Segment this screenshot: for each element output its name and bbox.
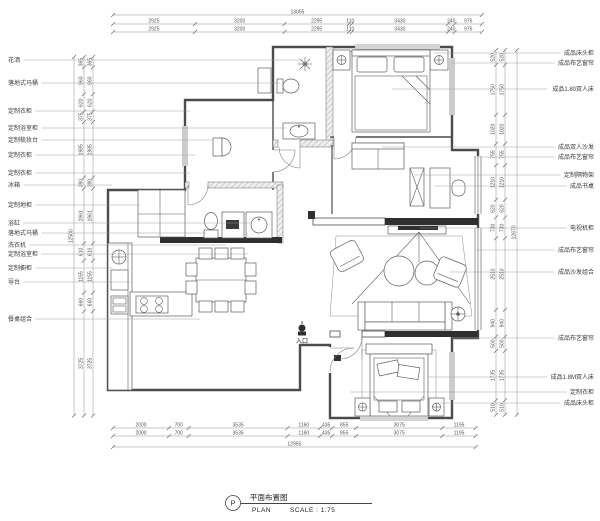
furniture-nw-room bbox=[213, 68, 271, 156]
column-hall bbox=[308, 211, 315, 219]
annotation-text: 3430 bbox=[394, 19, 405, 25]
annotation-text: 1155 bbox=[79, 271, 85, 282]
floor-plan-canvas: 入口 2925320022951103430240975292532002295… bbox=[0, 0, 600, 521]
tall-cabinet bbox=[138, 190, 185, 237]
pillow bbox=[357, 57, 387, 72]
annotation-text: 620 bbox=[88, 98, 94, 107]
wall-bath-south bbox=[300, 140, 333, 147]
annotation-text: 3075 bbox=[394, 423, 405, 429]
headboard bbox=[352, 50, 430, 56]
annotation-text: 960 bbox=[88, 76, 94, 85]
annotation-text: 1961 bbox=[79, 210, 85, 221]
annotation-text: 960 bbox=[79, 76, 85, 85]
annotation-text: 成品床头柜 bbox=[564, 399, 594, 407]
wall-bath-east bbox=[326, 47, 333, 145]
annotation-text: 1735 bbox=[491, 370, 497, 381]
furniture-living-room bbox=[329, 226, 472, 330]
annotation-text: 1210 bbox=[500, 177, 506, 188]
toilet-icon bbox=[205, 213, 218, 230]
annotation-text: 1750 bbox=[491, 84, 497, 95]
annotation-text: 2925 bbox=[148, 19, 159, 25]
kitchen-counter bbox=[108, 243, 132, 390]
drawing-title-cn: 平面布置图 bbox=[250, 492, 288, 502]
wall-bath2-east bbox=[277, 185, 283, 243]
annotation-text: 1985 bbox=[88, 144, 94, 155]
wall-bath2-north bbox=[208, 182, 283, 188]
window-nw-west bbox=[182, 126, 188, 166]
furniture-kitchen bbox=[108, 190, 192, 390]
annotation-text: 435 bbox=[322, 423, 331, 429]
door-bath2 bbox=[188, 185, 208, 205]
chair bbox=[245, 263, 256, 276]
dresser-icon bbox=[213, 138, 222, 156]
annotation-text: 1020 bbox=[491, 123, 497, 134]
window-bay-living bbox=[474, 228, 481, 330]
door-entry bbox=[330, 348, 354, 372]
annotation-text: 700 bbox=[175, 431, 184, 437]
annotation-text: 975 bbox=[464, 19, 473, 25]
annotation-text: 755 bbox=[500, 150, 506, 159]
annotation-text: 730 bbox=[491, 223, 497, 232]
annotation-text: 12670 bbox=[512, 225, 518, 239]
annotation-text: 620 bbox=[79, 98, 85, 107]
annotation-text: 2925 bbox=[148, 27, 159, 33]
toilet-tank bbox=[204, 230, 218, 238]
fixtures-bath2 bbox=[204, 212, 272, 238]
chair bbox=[231, 248, 244, 259]
fixtures-master-bath bbox=[277, 57, 315, 139]
annotation-text: 3430 bbox=[394, 27, 405, 33]
chair bbox=[186, 281, 197, 294]
desk-icon bbox=[430, 168, 450, 208]
annotation-text: 1160 bbox=[298, 431, 309, 437]
annotation-text: 855 bbox=[340, 431, 349, 437]
stool bbox=[379, 401, 397, 412]
furniture-study bbox=[352, 143, 465, 208]
furniture-master-bedroom bbox=[333, 50, 448, 132]
window-bedroom2-east bbox=[449, 352, 455, 400]
shower-head-icon bbox=[298, 57, 312, 71]
wall-bath2-north-stub bbox=[185, 182, 189, 188]
annotation-text: 成品布艺窗帘 bbox=[558, 59, 594, 67]
annotation-text: 成品1.80双人床 bbox=[552, 85, 594, 93]
annotation-text: 2510 bbox=[491, 268, 497, 279]
annotation-text: 定制衣柜 bbox=[8, 151, 32, 159]
annotation-text: 定制衣柜 bbox=[570, 388, 594, 396]
chair bbox=[231, 301, 244, 312]
annotation-text: 1195 bbox=[454, 431, 465, 437]
chair bbox=[245, 281, 256, 294]
annotation-text: 1155 bbox=[88, 271, 94, 282]
annotation-text: 110 bbox=[346, 27, 354, 33]
annotation-text: 成品书桌 bbox=[570, 182, 594, 190]
sink-unit bbox=[111, 296, 128, 314]
annotation-text: 375 bbox=[79, 112, 85, 121]
annotation-text: 940 bbox=[491, 319, 497, 328]
annotation-text: 500 bbox=[491, 339, 497, 348]
annotation-text: 390 bbox=[88, 179, 94, 188]
annotation-text: 餐桌组合 bbox=[8, 315, 32, 323]
wall-bedroom2-north-b bbox=[362, 331, 385, 337]
annotation-text: 1195 bbox=[454, 423, 465, 429]
annotation-text: 3535 bbox=[233, 423, 244, 429]
annotation-text: 1210 bbox=[491, 177, 497, 188]
annotation-text: 375 bbox=[88, 112, 94, 121]
coffee-table-icon bbox=[384, 256, 414, 286]
annotation-text: 电视机柜 bbox=[570, 224, 594, 232]
annotation-text: 520 bbox=[500, 53, 506, 62]
annotation-text: 成品床头柜 bbox=[564, 49, 594, 57]
annotation-text: 1961 bbox=[88, 210, 94, 221]
annotation-text: 240 bbox=[447, 19, 456, 25]
window-master-north bbox=[355, 44, 440, 50]
dresser-mirror bbox=[222, 138, 231, 156]
chair bbox=[199, 301, 212, 312]
floor-plan-sheet: 入口 2925320022951103430240975292532002295… bbox=[0, 0, 600, 521]
bed-bench bbox=[366, 344, 432, 354]
annotation-text: 定制梳妆台 bbox=[8, 136, 38, 144]
annotation-text: 1020 bbox=[500, 123, 506, 134]
annotation-text: 2000 bbox=[135, 431, 146, 437]
annotation-text: 940 bbox=[500, 319, 506, 328]
annotation-text: 620 bbox=[500, 204, 506, 213]
annotation-text: 1160 bbox=[298, 423, 309, 429]
window-master-east bbox=[449, 58, 455, 115]
annotation-text: 12500 bbox=[69, 229, 75, 243]
annotation-text: 成品布艺窗帘 bbox=[558, 334, 594, 342]
column-entry bbox=[334, 355, 341, 361]
annotation-text: 700 bbox=[175, 423, 184, 429]
annotation-text: 435 bbox=[322, 431, 331, 437]
annotation-text: 520 bbox=[491, 53, 497, 62]
annotation-text: 定制衣柜 bbox=[8, 107, 32, 115]
annotation-text: 730 bbox=[500, 223, 506, 232]
plant-pot bbox=[298, 332, 306, 336]
wall-tv-solid bbox=[385, 218, 478, 225]
annotation-text: 成品双人沙发 bbox=[558, 143, 594, 151]
entry-marker: 入口 bbox=[296, 321, 308, 345]
annotation-text: 成品沙发组合 bbox=[558, 268, 594, 276]
annotation-text: 500 bbox=[500, 339, 506, 348]
annotation-text: 定制地柜 bbox=[8, 201, 32, 209]
annotation-text: 落地式马桶 bbox=[8, 229, 38, 237]
annotation-text: 2295 bbox=[311, 19, 322, 25]
wall-bedroom2-north-a bbox=[330, 331, 340, 337]
annotation-text: 240 bbox=[447, 27, 456, 33]
annotation-text: 510 bbox=[500, 403, 506, 412]
furniture-bedroom2 bbox=[355, 344, 444, 416]
annotation-text: 3535 bbox=[233, 431, 244, 437]
title-letter: P bbox=[231, 501, 236, 508]
annotation-text: 110 bbox=[346, 19, 354, 25]
wall-bath-south-stub bbox=[273, 140, 278, 147]
stool bbox=[402, 401, 420, 412]
annotation-text: 390 bbox=[79, 179, 85, 188]
sofa-back bbox=[365, 322, 445, 330]
annotation-text: 定制橱柜 bbox=[8, 264, 32, 272]
annotation-text: 1985 bbox=[79, 144, 85, 155]
washer-panel bbox=[226, 220, 239, 229]
chair bbox=[215, 248, 228, 259]
armchair-icon bbox=[329, 239, 365, 273]
annotation-text: 冰箱 bbox=[8, 181, 20, 189]
wall-tv-left bbox=[313, 218, 385, 225]
annotation-text: 855 bbox=[340, 423, 349, 429]
annotation-text: 2295 bbox=[311, 27, 322, 33]
annotation-text: 成品布艺窗帘 bbox=[558, 246, 594, 254]
annotation-text: 12955 bbox=[287, 442, 301, 448]
annotation-text: 2000 bbox=[135, 423, 146, 429]
annotation-text: 定制浴室柜 bbox=[8, 124, 38, 132]
annotation-text: 365 bbox=[88, 58, 94, 67]
toilet-icon bbox=[283, 79, 299, 93]
annotation-text: 3200 bbox=[234, 19, 245, 25]
annotation-text: 3725 bbox=[88, 358, 94, 369]
chair bbox=[215, 301, 228, 312]
annotation-text: 755 bbox=[491, 150, 497, 159]
annotation-text: 浴缸 bbox=[8, 219, 20, 227]
annotation-text: 3075 bbox=[394, 431, 405, 437]
annotation-text: 花洒 bbox=[8, 56, 20, 64]
base-cabinet bbox=[111, 270, 128, 290]
annotation-text: 洗衣机 bbox=[8, 241, 26, 249]
drawing-title-en: PLAN bbox=[252, 507, 271, 514]
annotation-text: 510 bbox=[491, 403, 497, 412]
sofa-arm bbox=[358, 302, 365, 330]
annotation-text: 导台 bbox=[8, 278, 20, 286]
annotation-text: 定制浴室柜 bbox=[8, 250, 38, 258]
toilet-tank bbox=[277, 79, 283, 93]
annotation-text: 660 bbox=[79, 298, 85, 307]
annotation-text: 610 bbox=[79, 248, 85, 257]
annotation-text: 1750 bbox=[500, 84, 506, 95]
annotation-text: 13065 bbox=[290, 10, 304, 16]
annotation-text: 620 bbox=[491, 204, 497, 213]
annotation-text: 365 bbox=[79, 58, 85, 67]
title-block: P 平面布置图 PLAN SCALE : 1:75 bbox=[226, 492, 373, 514]
annotation-text: 975 bbox=[464, 27, 473, 33]
window-bay-study bbox=[474, 156, 481, 214]
drawing-scale: SCALE : 1:75 bbox=[290, 507, 335, 514]
annotation-text: 定制隔物架 bbox=[564, 171, 594, 179]
annotation-text: 2510 bbox=[500, 268, 506, 279]
sofa-icon bbox=[365, 302, 445, 322]
annotation-text: 3200 bbox=[234, 27, 245, 33]
chair bbox=[199, 248, 212, 259]
annotation-text: 成品布艺窗帘 bbox=[558, 153, 594, 161]
pillow bbox=[394, 57, 424, 72]
wall-bedroom2-north-solid bbox=[385, 331, 478, 337]
cabinet bbox=[258, 68, 271, 93]
annotation-text: 3725 bbox=[79, 358, 85, 369]
annotation-text: 660 bbox=[88, 298, 94, 307]
entry-label: 入口 bbox=[296, 338, 308, 345]
chair bbox=[186, 263, 197, 276]
furniture-dining bbox=[186, 248, 256, 312]
desk-chair-icon bbox=[452, 180, 465, 196]
plant-icon bbox=[299, 325, 306, 332]
annotation-text: 定制衣柜 bbox=[8, 169, 32, 177]
annotation-text: 610 bbox=[88, 248, 94, 257]
annotation-text: 成品1.8M双人床 bbox=[551, 373, 594, 381]
annotation-text: 落地式马桶 bbox=[8, 79, 38, 87]
annotation-text: 1735 bbox=[500, 370, 506, 381]
